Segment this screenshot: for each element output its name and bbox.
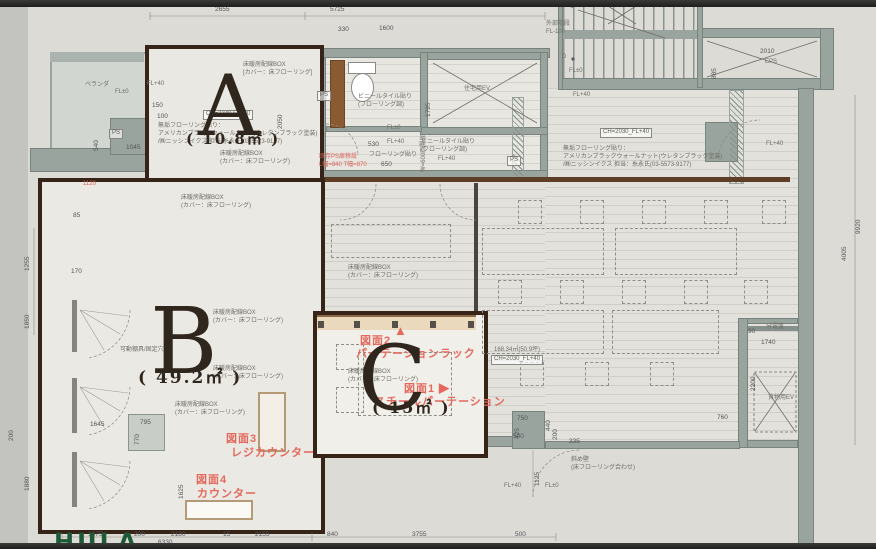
- dimension-label: 200: [8, 430, 16, 441]
- dimension-label: 1645: [90, 421, 104, 429]
- dimension-label: 1255: [24, 257, 32, 271]
- dimension-label: 425: [514, 428, 522, 439]
- annotation: 床暖房配線BOX (カバー：床フローリング): [181, 195, 251, 211]
- dimension-label: 15: [223, 531, 230, 539]
- room-area-b: ( 49.2㎡ ): [138, 370, 242, 387]
- annotation: 貨物用EV: [768, 395, 794, 403]
- dimension-label: 2655: [215, 6, 229, 14]
- annotation: FL±0: [387, 125, 401, 133]
- dimension-label: 540: [93, 140, 101, 151]
- dimension-label: 170: [71, 268, 82, 276]
- annotation: FL+40: [766, 141, 783, 149]
- dimension-label: 85: [73, 212, 80, 220]
- boxed-annotation: PS: [109, 129, 123, 139]
- annotation: 床暖房配線BOX (カバー：床フローリング): [348, 265, 418, 281]
- dimension-label: 1045: [126, 144, 140, 152]
- dimension-label: 100: [157, 113, 168, 121]
- annotation: 外部階段 FL-100: [546, 21, 570, 37]
- red-annotation: 既存PS扉移設 L幅=840 T幅=870: [319, 154, 367, 170]
- dimension-label: 530: [368, 141, 379, 149]
- annotation: 分電盤: [766, 324, 784, 332]
- floor-plan-canvas: 2655572533016002010174090760335167520021…: [0, 0, 876, 549]
- annotation: ビニールタイル貼り (フローリング調): [421, 139, 475, 155]
- annotation: FL+40: [573, 92, 590, 100]
- annotation: 斜め壁 (床フローリング合わせ): [571, 457, 635, 473]
- annotation: 無垢フローリング貼り： アメリカンブラックウォールナット(ウレタンブラック塗装)…: [563, 146, 722, 169]
- bottom-bar: [0, 543, 876, 549]
- dimension-label: 750: [517, 415, 528, 423]
- dimension-label: 2155: [255, 531, 269, 539]
- dimension-label: 3755: [412, 531, 426, 539]
- annotation: 床暖房配線BOX (カバー：床フローリング): [175, 402, 245, 418]
- dimension-label: 1600: [379, 25, 393, 33]
- dimension-label: 840: [327, 531, 338, 539]
- boxed-annotation: PS: [507, 156, 521, 166]
- dimension-label: 1850: [24, 315, 32, 329]
- boxed-annotation: CH=2030_FL+40: [491, 355, 543, 365]
- dimension-label: 200: [552, 429, 560, 440]
- red-annotation: 1120: [83, 181, 96, 189]
- dimension-label: 4005: [841, 247, 849, 261]
- room-area-a: ( 10.8㎡ ): [186, 132, 280, 147]
- dimension-label: 330: [338, 26, 349, 34]
- annotation: FL+40: [504, 483, 521, 491]
- annotation: FL+40: [438, 156, 455, 164]
- labels-layer: 2655572533016002010174090760335167520021…: [0, 0, 876, 549]
- annotation: EPS: [765, 59, 777, 67]
- dimension-label: 795: [140, 419, 151, 427]
- annotation: 床暖房配線BOX (カバー：床フローリング): [213, 310, 283, 326]
- dimension-label: 1880: [24, 477, 32, 491]
- top-bar: [0, 0, 876, 7]
- annotation: フローリング貼り: [369, 152, 417, 160]
- drawing-callout: 図面3: [226, 432, 257, 446]
- drawing-callout: レジカウンター: [231, 446, 315, 460]
- dimension-label: 90: [748, 328, 755, 336]
- annotation: 住宅用EV: [464, 86, 490, 94]
- dimension-label: 1740: [761, 339, 775, 347]
- annotation: 168.34㎡(50.9坪): [494, 347, 540, 355]
- annotation: ビニールタイル貼り (フローリング調): [358, 94, 412, 110]
- dimension-label: 150: [152, 102, 163, 110]
- dimension-label: 1625: [178, 485, 186, 499]
- room-area-c: ( 15㎡ ): [372, 400, 451, 416]
- annotation: FL±0: [545, 483, 559, 491]
- dimension-label: 2200: [750, 377, 758, 391]
- dimension-label: 760: [717, 414, 728, 422]
- annotation: FL+40: [147, 81, 164, 89]
- drawing-callout: 図面4: [196, 473, 227, 487]
- dimension-label: 335: [569, 438, 580, 446]
- annotation: FL+40: [387, 139, 404, 147]
- dimension-label: 2180: [171, 531, 185, 539]
- annotation: FL±0: [569, 68, 583, 76]
- annotation: FL±0: [115, 89, 129, 97]
- dimension-label: 500: [515, 531, 526, 539]
- boxed-annotation: CH=2030_FL+40: [600, 128, 652, 138]
- annotation: W=600両開扉: [421, 135, 429, 172]
- dimension-label: 1795: [425, 103, 433, 117]
- dimension-label: 770: [134, 434, 142, 445]
- annotation: ベランダ: [85, 82, 109, 90]
- boxed-annotation: PS: [317, 91, 331, 101]
- dimension-label: 650: [381, 161, 392, 169]
- dimension-label: 1125: [534, 472, 542, 486]
- dimension-label: 2010: [760, 48, 774, 56]
- drawing-callout: カウンター: [197, 487, 257, 501]
- dimension-label: 9920: [855, 220, 863, 234]
- annotation: D: [562, 54, 566, 62]
- dimension-label: 5725: [330, 6, 344, 14]
- dimension-label: 885: [711, 68, 719, 79]
